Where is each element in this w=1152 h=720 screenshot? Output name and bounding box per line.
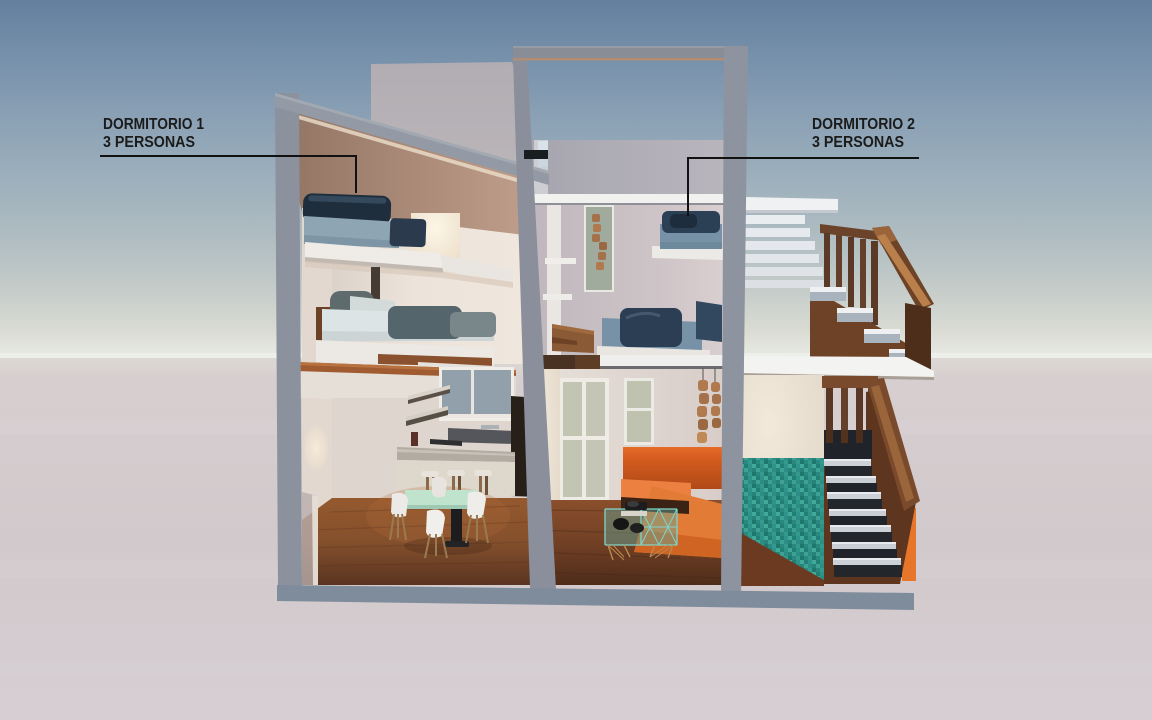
svg-text:DORMITORIO 2: DORMITORIO 2 (812, 116, 915, 133)
svg-text:DORMITORIO 1: DORMITORIO 1 (103, 116, 204, 133)
svg-text:3 PERSONAS: 3 PERSONAS (103, 134, 195, 151)
svg-text:3 PERSONAS: 3 PERSONAS (812, 134, 904, 151)
